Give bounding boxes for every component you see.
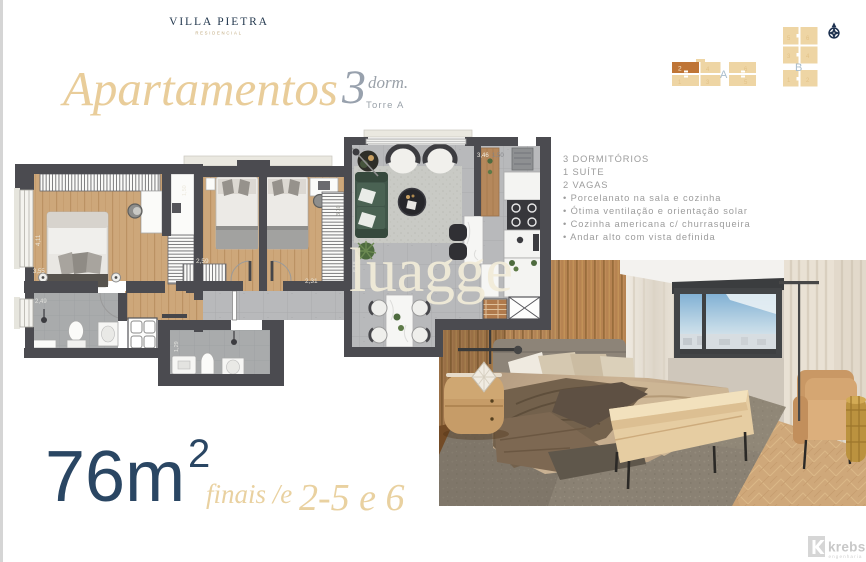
svg-text:1,50: 1,50 [492, 153, 504, 159]
svg-text:• Ótima ventilação e orientaçã: • Ótima ventilação e orientação solar [563, 206, 748, 216]
svg-text:76m: 76m [45, 437, 185, 517]
svg-text:• Porcelanato na sala e cozinh: • Porcelanato na sala e cozinha [563, 193, 721, 203]
svg-text:A: A [720, 69, 728, 81]
svg-text:engenharia: engenharia [829, 554, 863, 559]
svg-text:3,46: 3,46 [477, 153, 489, 159]
svg-text:3,10: 3,10 [336, 205, 342, 216]
svg-text:2: 2 [188, 432, 210, 476]
svg-text:RESIDENCIAL: RESIDENCIAL [195, 31, 242, 36]
svg-text:• Andar alto com vista definid: • Andar alto com vista definida [563, 232, 716, 242]
svg-text:4,11: 4,11 [36, 234, 42, 246]
svg-text:1 SUÍTE: 1 SUÍTE [563, 167, 604, 177]
svg-text:2,49: 2,49 [35, 299, 47, 305]
svg-text:Torre A: Torre A [366, 100, 405, 111]
svg-text:2,31: 2,31 [305, 278, 318, 285]
svg-text:2,59: 2,59 [196, 258, 209, 265]
svg-text:3: 3 [341, 61, 366, 114]
svg-text:2 VAGAS: 2 VAGAS [563, 180, 608, 190]
svg-text:Apartamentos: Apartamentos [60, 61, 338, 116]
svg-text:dorm.: dorm. [368, 73, 408, 92]
svg-text:• Cozinha americana c/ churras: • Cozinha americana c/ churrasqueira [563, 219, 751, 229]
svg-text:2: 2 [678, 66, 682, 73]
svg-text:3 DORMITÓRIOS: 3 DORMITÓRIOS [563, 154, 649, 164]
svg-text:1,50: 1,50 [182, 185, 188, 196]
svg-text:krebs: krebs [828, 540, 866, 555]
svg-text:1,29: 1,29 [174, 341, 180, 352]
svg-text:B: B [795, 62, 802, 74]
svg-text:3,55: 3,55 [33, 269, 45, 275]
svg-text:luagge: luagge [349, 237, 513, 305]
svg-text:VILLA PIETRA: VILLA PIETRA [169, 16, 269, 28]
